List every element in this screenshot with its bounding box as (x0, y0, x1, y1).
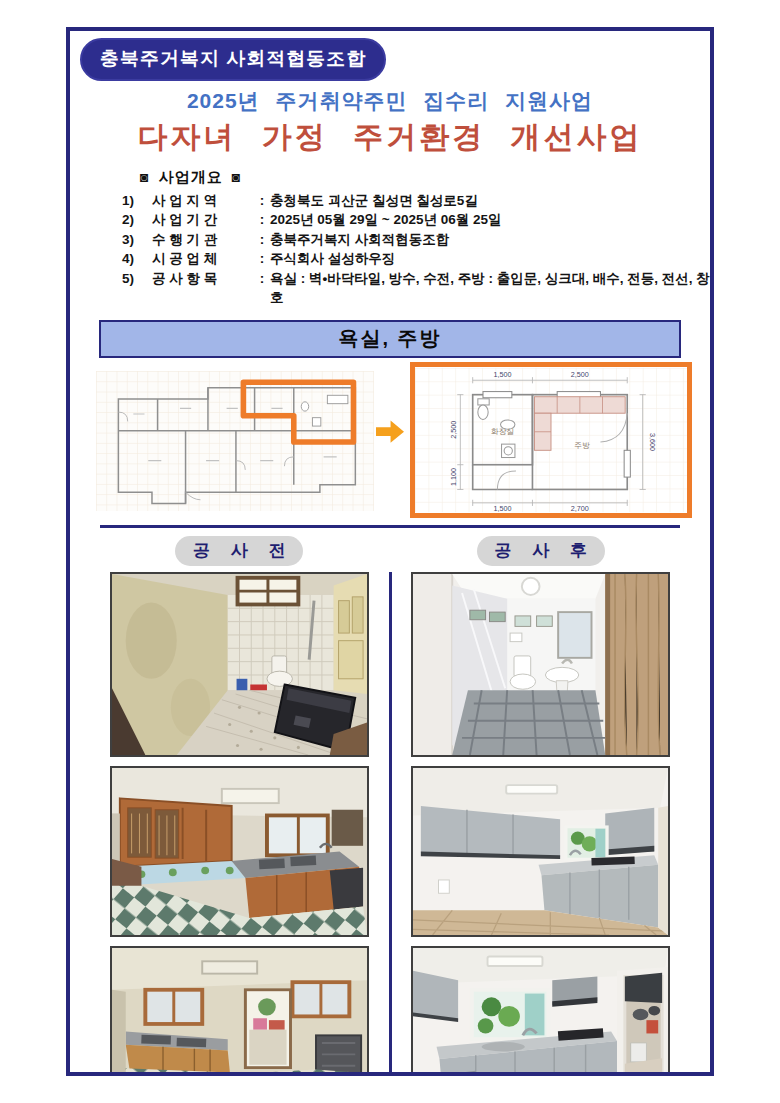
photo-grid (90, 572, 690, 1076)
dim-label-bottom-right: 2,700 (571, 504, 589, 513)
photo-before-kitchen-1 (110, 766, 369, 937)
overview-heading: ◙ 사업개요 ◙ (136, 168, 710, 187)
overview-item: 4) 시 공 업 체 : 주식회사 설성하우징 (122, 249, 710, 268)
overview-item: 2) 사 업 기 간 : 2025년 05월 29일 ~ 2025년 06월 2… (122, 210, 710, 229)
overview-heading-text: 사업개요 (159, 168, 223, 185)
overview-section: ◙ 사업개요 ◙ 1) 사 업 지 역 : 충청북도 괴산군 칠성면 칠성로5길… (122, 168, 710, 308)
overview-bullet-icon: ◙ (140, 169, 149, 185)
project-subtitle: 2025년 주거취약주민 집수리 지원사업 (70, 87, 710, 115)
photo-before-bathroom (110, 572, 369, 757)
photo-before-kitchen-2 (110, 946, 369, 1076)
org-badge: 충북주거복지 사회적협동조합 (80, 38, 386, 81)
before-after-header: 공 사 전 공 사 후 (90, 536, 690, 566)
dim-label-right: 3,600 (648, 433, 657, 451)
dim-label-top-right: 2,500 (571, 370, 589, 379)
dim-label-left-lower: 1,100 (449, 468, 458, 486)
before-label: 공 사 전 (175, 536, 303, 566)
before-column (90, 572, 389, 1076)
divider-rule (100, 525, 680, 528)
arrow-right-icon (376, 420, 404, 444)
floorplan-row: 1,500 2,500 1,500 2,700 2,500 1,100 3,60… (96, 366, 692, 516)
overview-bullet-icon: ◙ (232, 169, 241, 185)
floorplan-detail-drawing: 1,500 2,500 1,500 2,700 2,500 1,100 3,60… (415, 367, 687, 513)
overview-item: 5) 공 사 항 목 : 욕실 : 벽•바닥타일, 방수, 수전, 주방 : 출… (122, 269, 710, 308)
after-column (392, 572, 691, 1076)
after-label: 공 사 후 (477, 536, 605, 566)
section-banner: 욕실, 주방 (99, 320, 681, 358)
page-border-frame: 충북주거복지 사회적협동조합 2025년 주거취약주민 집수리 지원사업 다자녀… (66, 27, 714, 1076)
room-label-kitchen: 주방 (574, 441, 590, 450)
overview-item: 3) 수 행 기 관 : 충북주거복지 사회적협동조합 (122, 230, 710, 249)
section-banner-label: 욕실, 주방 (338, 327, 441, 349)
dim-label-left-upper: 2,500 (449, 420, 458, 438)
photo-after-kitchen-1 (411, 766, 670, 937)
dim-label-top-left: 1,500 (494, 370, 512, 379)
dim-label-bottom-left: 1,500 (494, 504, 512, 513)
photo-after-kitchen-2 (411, 946, 670, 1076)
floorplan-detail: 1,500 2,500 1,500 2,700 2,500 1,100 3,60… (410, 362, 692, 518)
floorplan-overview (96, 366, 374, 516)
room-label-bathroom: 화장실 (491, 426, 514, 435)
overview-item: 1) 사 업 지 역 : 충청북도 괴산군 칠성면 칠성로5길 (122, 191, 710, 210)
project-title: 다자녀 가정 주거환경 개선사업 (70, 117, 710, 158)
photo-after-bathroom (411, 572, 670, 757)
